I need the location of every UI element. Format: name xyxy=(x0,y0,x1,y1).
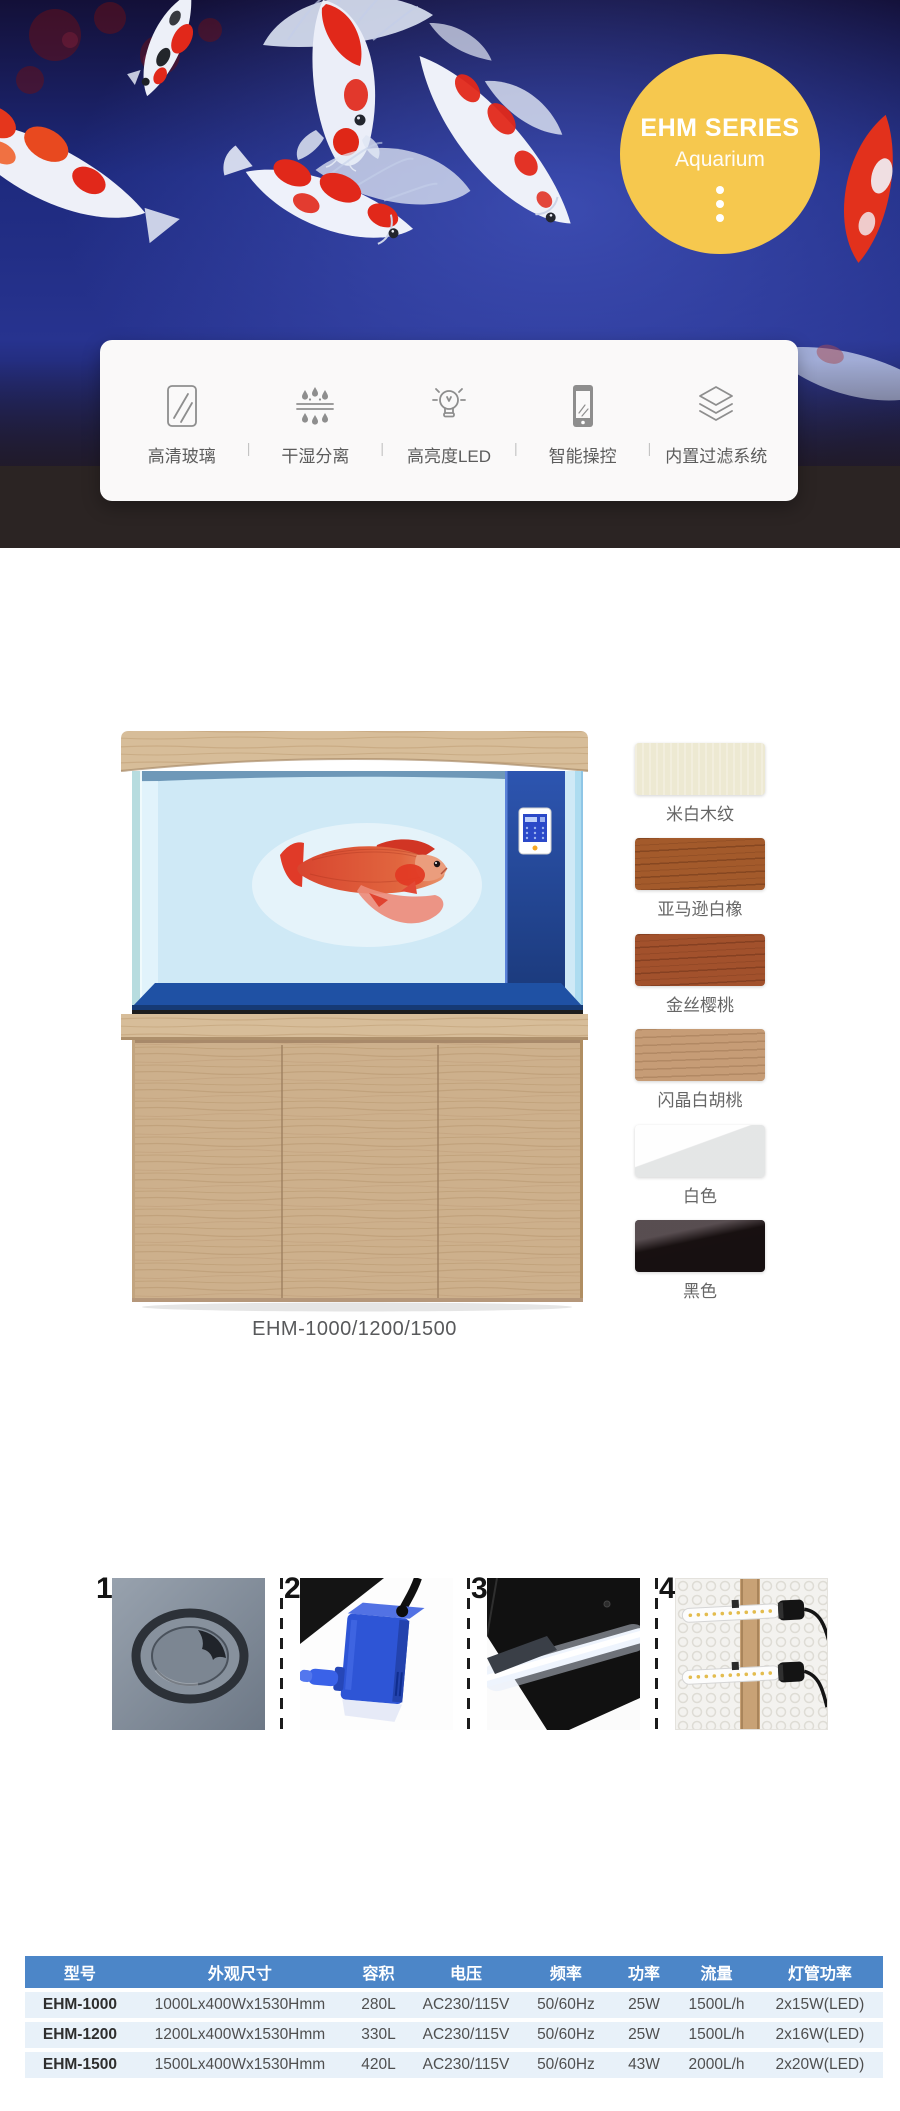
cell-power: 25W xyxy=(612,2022,676,2048)
cell-dimensions: 1200Lx400Wx1530Hmm xyxy=(135,2022,345,2048)
feature-label: 干湿分离 xyxy=(281,442,349,467)
spec-row-ehm-1000: EHM-1000 1000Lx400Wx1530Hmm 280L AC230/1… xyxy=(25,1992,883,2018)
detail-number: 2 xyxy=(284,1574,301,1604)
spec-table-header-row: 型号 外观尺寸 容积 电压 频率 功率 流量 灯管功率 xyxy=(25,1956,883,1988)
glass-pane-icon xyxy=(160,382,204,432)
swatch-color xyxy=(635,1029,765,1081)
series-badge-subtitle: Aquarium xyxy=(620,148,820,172)
cell-dimensions: 1500Lx400Wx1530Hmm xyxy=(135,2052,345,2078)
swatch-amazon-oak: 亚马逊白橡 xyxy=(635,838,765,920)
detail-number: 1 xyxy=(96,1574,113,1604)
led-lid-photo xyxy=(487,1578,640,1730)
filter-box-photo xyxy=(300,1578,453,1730)
swatch-black: 黑色 xyxy=(635,1220,765,1302)
swatch-label: 亚马逊白橡 xyxy=(635,895,765,920)
feature-card: 高清玻璃 | xyxy=(100,340,798,501)
detail-number: 3 xyxy=(471,1574,488,1604)
led-tubes-photo xyxy=(675,1578,828,1730)
cell-model: EHM-1000 xyxy=(25,1992,135,2018)
swatch-label: 闪晶白胡桃 xyxy=(635,1086,765,1111)
swatch-color xyxy=(635,1220,765,1272)
feature-divider: | xyxy=(380,382,384,456)
photo-divider xyxy=(467,1578,470,1730)
feature-divider: | xyxy=(648,382,652,456)
product-detail-page: EHM SERIES Aquarium 高清玻璃 | xyxy=(0,0,900,2111)
feature-label: 高亮度LED xyxy=(407,442,491,467)
cell-capacity: 280L xyxy=(345,1992,412,2018)
dry-wet-separation-icon xyxy=(293,382,337,432)
feeding-hole-photo xyxy=(112,1578,265,1730)
cell-frequency: 50/60Hz xyxy=(520,2052,612,2078)
model-caption: EHM-1000/1200/1500 xyxy=(117,1318,592,1341)
feature-dry-wet: 干湿分离 xyxy=(264,382,366,467)
cell-frequency: 50/60Hz xyxy=(520,2022,612,2048)
cell-dimensions: 1000Lx400Wx1530Hmm xyxy=(135,1992,345,2018)
col-header-power: 功率 xyxy=(612,1956,676,1988)
feature-divider: | xyxy=(514,382,518,456)
cell-lamp-power: 2x20W(LED) xyxy=(757,2052,883,2078)
spec-row-ehm-1500: EHM-1500 1500Lx400Wx1530Hmm 420L AC230/1… xyxy=(25,2052,883,2078)
cell-capacity: 420L xyxy=(345,2052,412,2078)
cell-model: EHM-1200 xyxy=(25,2022,135,2048)
feature-filter-system: 内置过滤系统 xyxy=(665,382,767,467)
cell-lamp-power: 2x15W(LED) xyxy=(757,1992,883,2018)
tank-wood-base xyxy=(121,1014,588,1040)
swatch-golden-cherry: 金丝樱桃 xyxy=(635,934,765,1016)
cell-flow: 2000L/h xyxy=(676,2052,757,2078)
swatch-label: 白色 xyxy=(635,1182,765,1207)
photo-divider xyxy=(655,1578,658,1730)
cell-voltage: AC230/115V xyxy=(412,1992,520,2018)
col-header-frequency: 频率 xyxy=(520,1956,612,1988)
cell-power: 25W xyxy=(612,1992,676,2018)
swatch-cream-wood: 米白木纹 xyxy=(635,743,765,825)
filter-layers-icon xyxy=(694,382,738,432)
spec-table: 型号 外观尺寸 容积 电压 频率 功率 流量 灯管功率 EHM-1000 100… xyxy=(25,1952,883,2082)
swatch-color xyxy=(635,743,765,795)
cell-model: EHM-1500 xyxy=(25,2052,135,2078)
cell-voltage: AC230/115V xyxy=(412,2052,520,2078)
swatch-white: 白色 xyxy=(635,1125,765,1207)
swatch-color xyxy=(635,1125,765,1177)
col-header-flow: 流量 xyxy=(676,1956,757,1988)
photo-divider xyxy=(280,1578,283,1730)
series-badge-title: EHM SERIES xyxy=(620,114,820,143)
col-header-capacity: 容积 xyxy=(345,1956,412,1988)
aquarium-product-image xyxy=(117,727,592,1312)
cell-voltage: AC230/115V xyxy=(412,2022,520,2048)
feature-label: 智能操控 xyxy=(549,442,617,467)
feature-led: 高亮度LED xyxy=(398,382,500,467)
swatch-white-walnut: 闪晶白胡桃 xyxy=(635,1029,765,1111)
cell-lamp-power: 2x16W(LED) xyxy=(757,2022,883,2048)
feature-divider: | xyxy=(247,382,251,456)
swatch-label: 米白木纹 xyxy=(635,800,765,825)
cabinet xyxy=(132,1040,583,1302)
feature-label: 高清玻璃 xyxy=(148,442,216,467)
spec-row-ehm-1200: EHM-1200 1200Lx400Wx1530Hmm 330L AC230/1… xyxy=(25,2022,883,2048)
swatch-label: 黑色 xyxy=(635,1277,765,1302)
cell-flow: 1500L/h xyxy=(676,1992,757,2018)
cell-frequency: 50/60Hz xyxy=(520,1992,612,2018)
badge-dots-icon xyxy=(620,186,820,222)
feature-label: 内置过滤系统 xyxy=(665,442,767,467)
led-bulb-icon xyxy=(427,382,471,432)
col-header-lamp-power: 灯管功率 xyxy=(757,1956,883,1988)
smart-control-icon xyxy=(561,382,605,432)
swatch-label: 金丝樱桃 xyxy=(635,991,765,1016)
feature-hd-glass: 高清玻璃 xyxy=(131,382,233,467)
cell-flow: 1500L/h xyxy=(676,2022,757,2048)
swatch-color xyxy=(635,838,765,890)
detail-number: 4 xyxy=(659,1574,676,1604)
swatch-color xyxy=(635,934,765,986)
feature-smart-control: 智能操控 xyxy=(532,382,634,467)
col-header-voltage: 电压 xyxy=(412,1956,520,1988)
control-panel xyxy=(519,808,551,854)
col-header-dimensions: 外观尺寸 xyxy=(135,1956,345,1988)
filter-column xyxy=(505,771,565,1011)
cell-capacity: 330L xyxy=(345,2022,412,2048)
col-header-model: 型号 xyxy=(25,1956,135,1988)
cell-power: 43W xyxy=(612,2052,676,2078)
series-badge: EHM SERIES Aquarium xyxy=(620,54,820,254)
